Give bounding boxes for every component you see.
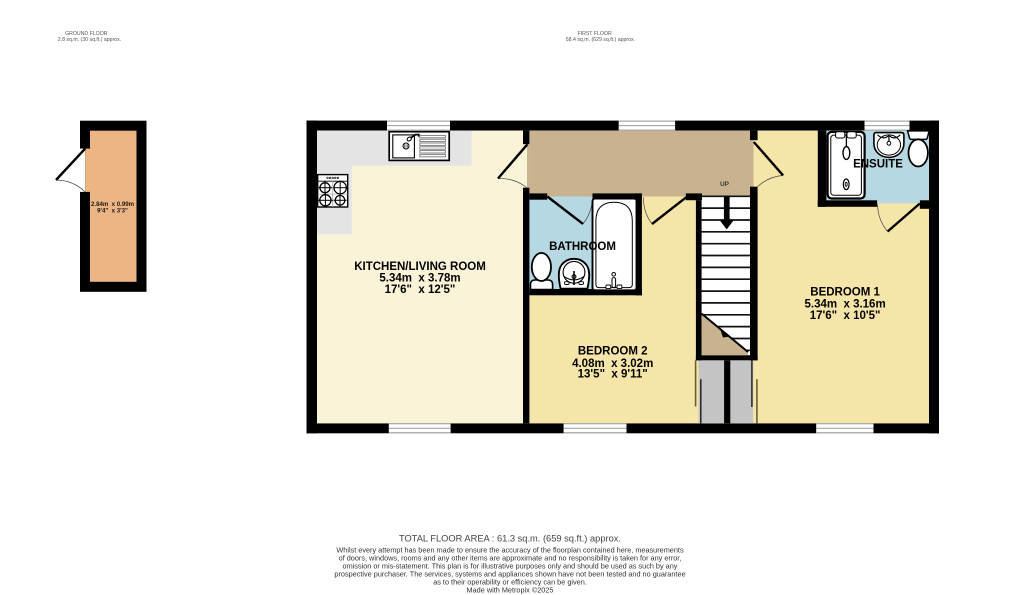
svg-text:5.34m x 3.78m: 5.34m x 3.78m <box>379 273 460 285</box>
svg-text:5.34m x 3.16m: 5.34m x 3.16m <box>804 299 885 311</box>
svg-text:13'5" x 9'11": 13'5" x 9'11" <box>578 368 648 380</box>
svg-text:UP: UP <box>720 181 730 188</box>
svg-text:58.4 sq.m. (629 sq.ft.) approx: 58.4 sq.m. (629 sq.ft.) approx. <box>566 37 635 43</box>
svg-text:KITCHEN/LIVING ROOM: KITCHEN/LIVING ROOM <box>354 261 486 273</box>
svg-text:BATHROOM: BATHROOM <box>549 241 616 253</box>
svg-text:Made with Metropix ©2025: Made with Metropix ©2025 <box>467 586 554 595</box>
svg-text:2.8 sq.m. (30 sq.ft.) approx.: 2.8 sq.m. (30 sq.ft.) approx. <box>58 37 121 43</box>
svg-text:BEDROOM 1: BEDROOM 1 <box>810 287 880 299</box>
svg-text:BEDROOM 2: BEDROOM 2 <box>578 346 648 358</box>
svg-text:17'6" x 12'5": 17'6" x 12'5" <box>385 284 456 296</box>
svg-text:17'6" x 10'5": 17'6" x 10'5" <box>810 310 881 322</box>
svg-text:TOTAL FLOOR AREA : 61.3 sq.m.: TOTAL FLOOR AREA : 61.3 sq.m. (659 sq.ft… <box>399 534 621 544</box>
svg-text:ENSUITE: ENSUITE <box>853 159 903 171</box>
svg-text:9'4" x 3'3": 9'4" x 3'3" <box>97 208 128 215</box>
